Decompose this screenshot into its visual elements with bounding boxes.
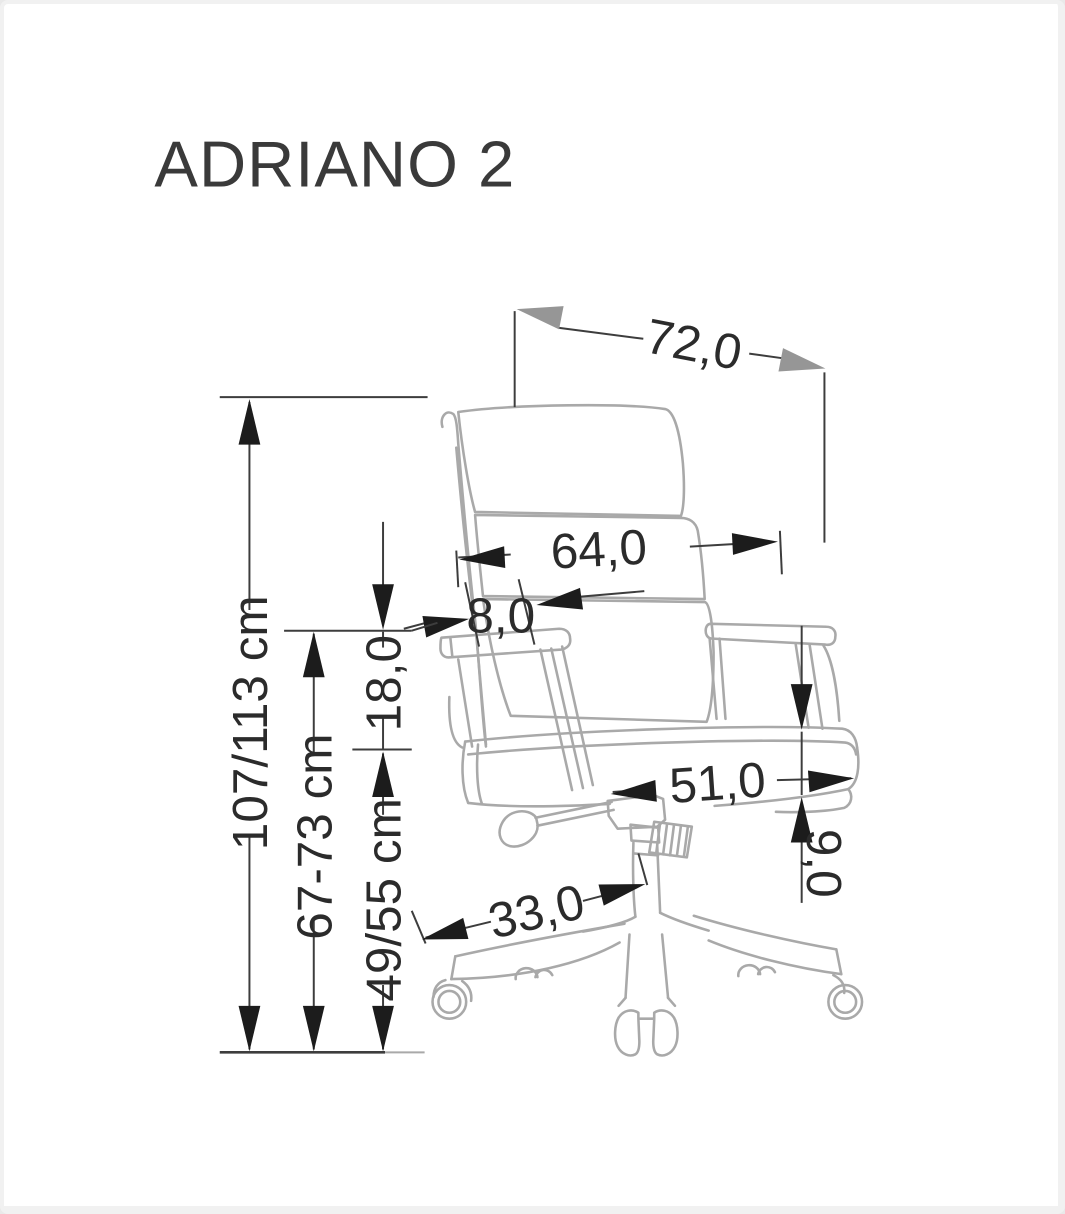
dimension-annotations: 72,0 64,0 8,0 18,0 [220,297,855,1052]
right-armrest-front-post-2 [720,639,726,719]
dim-label-overall-depth: 72,0 [641,309,746,381]
tilt-lever-rod-top [535,802,611,818]
base-hub-right [660,913,708,931]
arrowhead [372,584,394,630]
arrowhead [239,399,261,445]
dim-label-armrest-above-seat: 18,0 [357,635,412,731]
extension-tick [456,551,458,588]
seat-left-face [463,742,469,803]
dim-label-backrest-thickness: 8,0 [466,588,535,643]
seat-top-piping-2 [468,741,856,755]
dim-label-seat-height: 49/55 cm [357,798,412,1001]
seat-top-piping-1 [465,727,857,747]
arrowhead [791,684,813,730]
dim-seat-depth: 51,0 [610,752,855,814]
arrowhead [610,780,657,805]
extension-line [638,853,647,885]
front-foot-flare-right [668,998,675,1006]
drawing-sheet: 72,0 64,0 8,0 18,0 [0,0,1065,1214]
front-foot-flare-left [619,998,626,1006]
seat-right-face [848,748,858,790]
dim-backrest-thickness: 8,0 [404,579,644,646]
right-armrest-pad [706,624,836,645]
front-leg-right-edge [662,935,668,998]
left-armrest-rear-support [458,659,472,746]
dim-label-seat-depth: 51,0 [668,752,768,814]
left-caster-wheel-inner [438,991,460,1013]
dim-label-seat-thickness: 9,0 [796,829,851,898]
headrest-cushion [458,405,684,516]
arrowhead [239,1006,261,1052]
front-caster-left-lobe [615,1010,639,1055]
arrowhead [422,608,471,637]
dim-label-armrest-height: 67-73 cm [287,733,342,939]
dim-label-base-leg-length: 33,0 [483,874,589,949]
dim-overall-depth: 72,0 [514,297,827,542]
left-armrest-endcap [450,638,452,657]
bellows-rib-3 [670,825,674,856]
arrowhead-gray [514,297,563,329]
arrowhead [303,632,325,678]
arrowhead [599,874,648,906]
arrowhead [372,751,394,797]
product-title: ADRIANO 2 [154,127,515,200]
arrowhead [419,918,468,950]
dim-base-leg-length: 33,0 [412,853,648,950]
right-armrest-post-outer [823,646,839,721]
rear-right-caster [738,965,775,976]
chair-drawing [433,405,863,1055]
dim-backrest-width: 64,0 [456,520,782,588]
tilt-lever-loop [500,811,538,846]
backrest-frame-bottom-connector [449,697,462,747]
front-leg-left-edge [626,935,630,998]
right-caster-wheel-inner [834,991,856,1013]
left-leg-end-face [451,956,455,979]
dimension-line-segment [749,354,785,359]
dimension-line-segment [559,328,643,339]
arrowhead [535,588,583,616]
arrowhead [732,531,779,555]
seat-lower-lip [776,789,851,812]
bellows-rib-4 [677,826,681,856]
dim-label-backrest-width: 64,0 [549,520,648,580]
arrowhead [303,1006,325,1052]
chair-dimension-diagram: 72,0 64,0 8,0 18,0 [4,4,1058,1206]
dim-seat-height: 49/55 cm [352,749,411,1051]
arrowhead [372,1006,394,1052]
tilt-lever-rod-bottom [537,810,613,826]
bellows-rib-2 [663,824,667,855]
front-caster-right-lobe [653,1010,677,1055]
right-leg-end-face [836,949,841,974]
dim-label-total-height: 107/113 cm [223,595,278,850]
dim-armrest-above-seat: 18,0 [357,522,412,749]
extension-tick [780,531,782,575]
arrowhead-gray [778,348,827,380]
leader-line [575,591,644,597]
